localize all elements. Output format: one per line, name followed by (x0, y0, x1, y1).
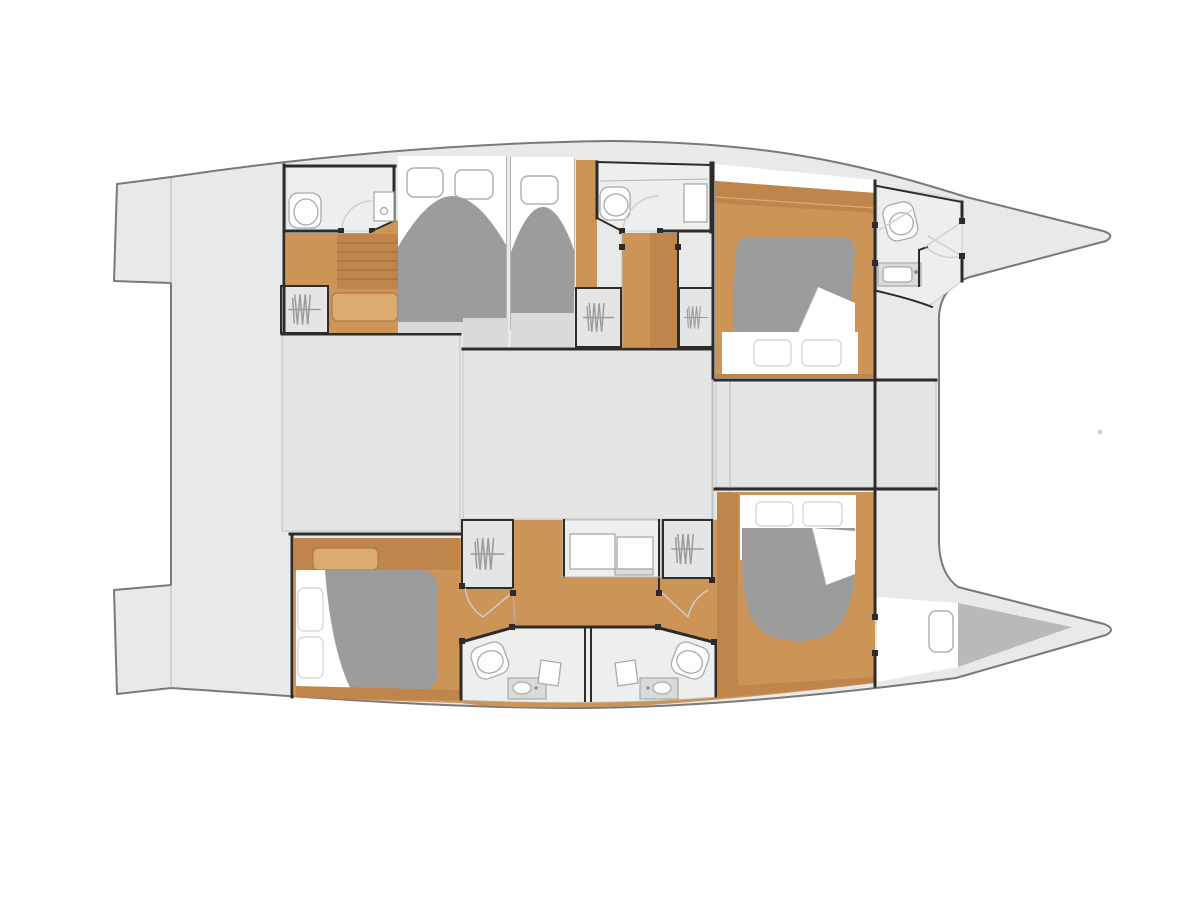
door-post (959, 218, 965, 224)
floor-plan-page (0, 0, 1200, 900)
shower-panel-icon (684, 184, 707, 222)
door-post (459, 638, 465, 644)
companionway-shade (650, 233, 678, 347)
vanity-sink-icon (653, 682, 671, 694)
forward-cabin-upper (713, 163, 875, 378)
floor-plan-svg (0, 0, 1200, 900)
side-band (717, 493, 738, 689)
desk-sink-icon (617, 537, 653, 569)
port-aft-bathroom (284, 166, 395, 234)
door-post (510, 590, 516, 596)
shower-seat (615, 660, 638, 686)
hull-window (407, 168, 443, 197)
pillow (803, 502, 842, 526)
toilet-bowl-icon (294, 199, 318, 225)
wardrobe-port-mid-left (576, 288, 621, 347)
wardrobe-lower-right (663, 520, 712, 578)
wardrobe-lower-left (462, 520, 513, 588)
shower-tray-icon (374, 192, 394, 221)
door-post (509, 624, 515, 630)
pillow (298, 588, 323, 631)
toilet-bowl-icon (604, 194, 628, 216)
step-strip (463, 318, 508, 347)
wardrobe-port-aft (281, 286, 328, 333)
shower-seat (538, 660, 561, 686)
door-post (711, 639, 717, 645)
desk-ledge (615, 569, 653, 575)
door-post (619, 244, 625, 250)
foot-band (715, 374, 875, 378)
cabin-sole (576, 160, 597, 288)
aft-cabin-lower (290, 534, 462, 700)
bed-foot-bench (332, 293, 398, 321)
bed-foot-bench (313, 548, 378, 570)
step-strip (511, 313, 574, 347)
faucet-icon (914, 270, 918, 274)
door-post (872, 614, 878, 620)
door-post (459, 583, 465, 589)
door-post (872, 650, 878, 656)
faucet-icon (534, 686, 538, 690)
pillow (756, 502, 793, 526)
port-cabin-1-bed (398, 156, 511, 333)
port-companionway (619, 233, 681, 347)
artifact-dot (1098, 430, 1103, 435)
pillow (298, 637, 323, 678)
bathroom-floor (877, 186, 962, 305)
pillow (754, 340, 791, 366)
desk-top (570, 534, 615, 569)
twin-bathrooms (459, 624, 717, 702)
saloon-block-aft (282, 333, 460, 531)
vanity-sink-icon (883, 267, 912, 282)
door-post (656, 590, 662, 596)
door-post (675, 244, 681, 250)
hull-window (455, 170, 493, 199)
vanity-sink-icon (513, 682, 531, 694)
door-post (709, 577, 715, 583)
hull-window (521, 176, 558, 204)
bow-bathroom (872, 186, 965, 307)
saloon-block-fwd (463, 348, 712, 519)
hull-window (929, 611, 953, 652)
faucet-icon (646, 686, 650, 690)
forward-cockpit-block (716, 381, 936, 487)
port-mid-bathroom (597, 162, 711, 234)
door-post (959, 253, 965, 259)
wardrobe-port-mid-right (679, 288, 713, 347)
shower-drain-icon (381, 208, 388, 215)
pillow (802, 340, 841, 366)
door-post (655, 624, 661, 630)
